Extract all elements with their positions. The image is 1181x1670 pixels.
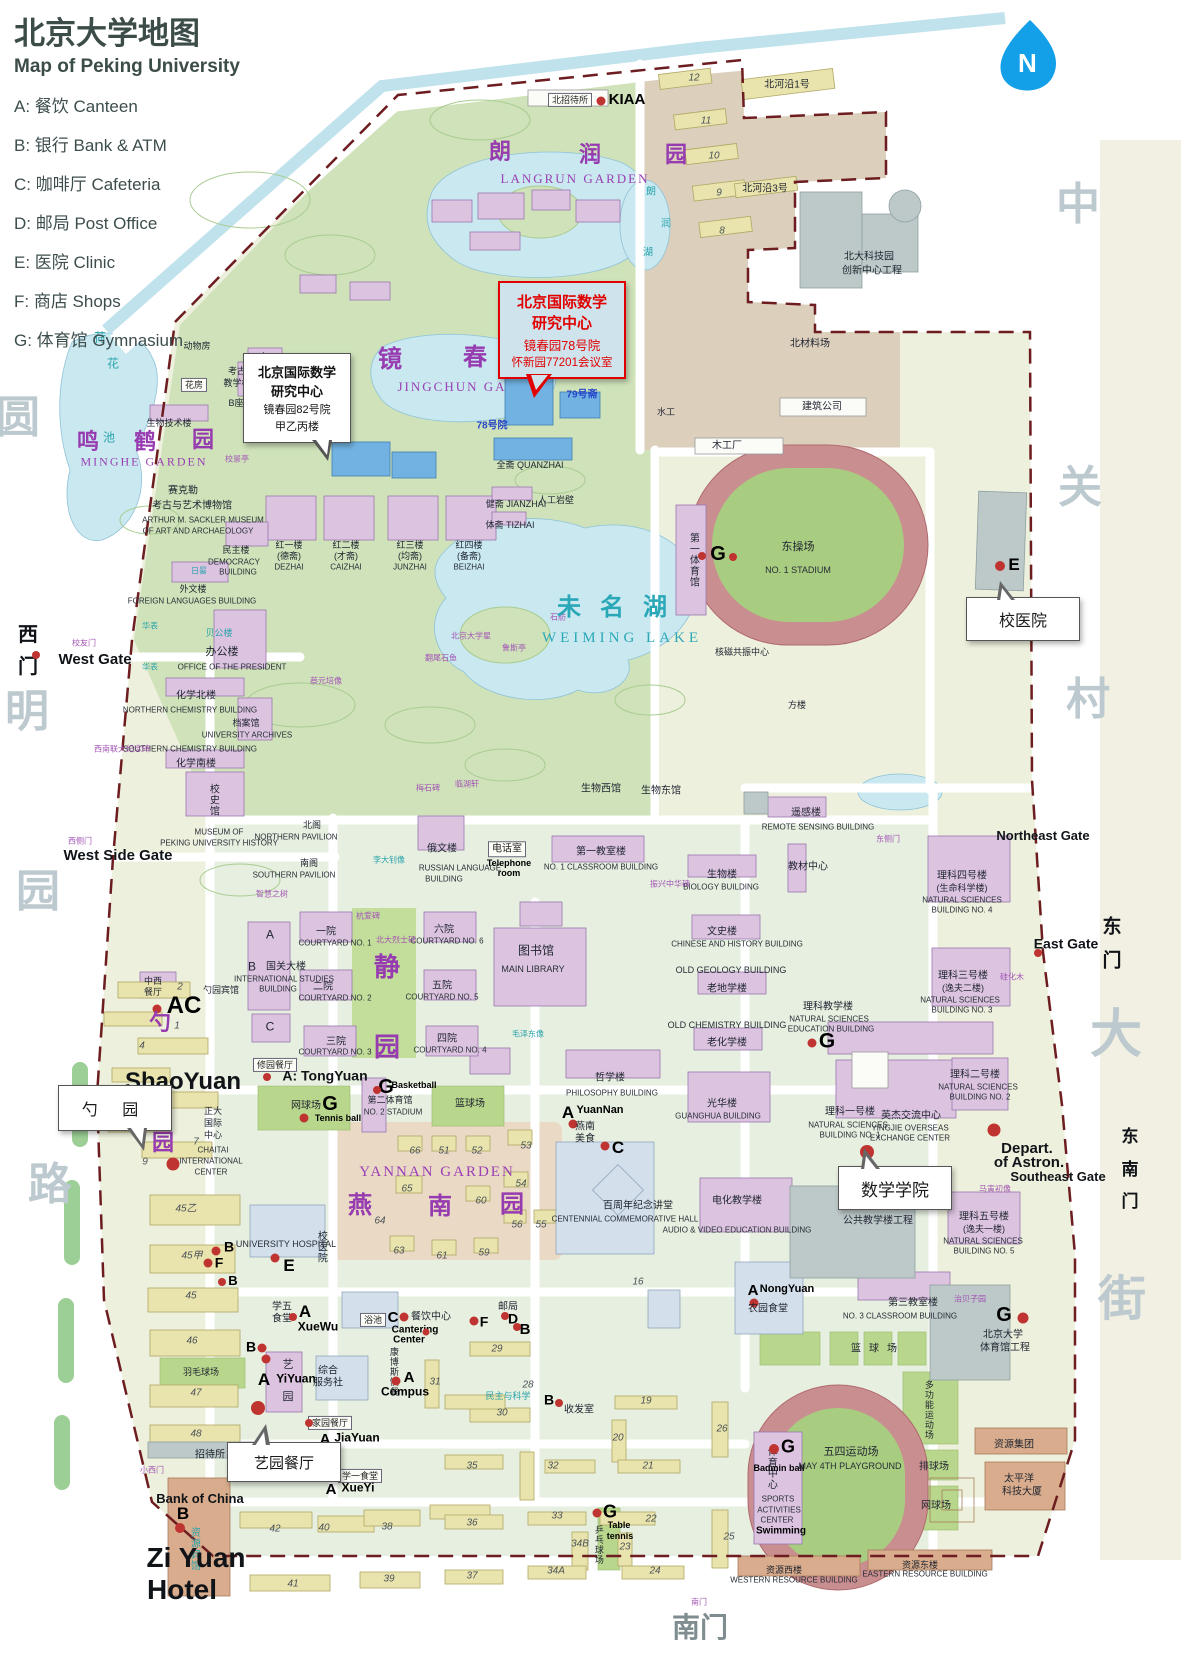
callout-shaoyuan: 勺 园: [58, 1085, 172, 1131]
marker-dot: [204, 1259, 213, 1268]
map-label: OF ART AND ARCHAEOLOGY: [143, 528, 254, 537]
map-label: 园: [16, 868, 60, 916]
marker-dot: [601, 1142, 610, 1151]
map-label: 北大烈士碑: [376, 937, 416, 946]
gate-label: 西: [18, 625, 38, 647]
map-label: 北河沿3号: [742, 185, 788, 196]
map-label: (均斋): [398, 552, 422, 562]
poi-marker: E: [283, 1257, 294, 1275]
map-label: (逸夫二楼): [942, 984, 984, 994]
map-label: 61: [436, 1252, 447, 1263]
map-label: 水工: [657, 408, 675, 418]
marker-dot: [271, 1254, 280, 1263]
map-label: 文史楼: [707, 928, 737, 939]
map-label: 润: [661, 220, 671, 231]
map-label: 国关大楼: [266, 963, 306, 974]
map-label: 大: [1090, 1007, 1142, 1063]
callout-line: 研究中心: [532, 312, 592, 333]
map-label: 24: [649, 1567, 660, 1578]
map-label: 木工厂: [712, 442, 742, 453]
poi-marker: Compus: [381, 1386, 429, 1399]
map-label: BIOLOGY BUILDING: [683, 884, 759, 893]
map-label: 学五: [272, 1303, 292, 1314]
map-label: 30: [496, 1409, 507, 1420]
map-label: INTERNATIONAL: [179, 1158, 242, 1167]
map-label: 64: [374, 1217, 385, 1228]
map-label: 生物楼: [707, 871, 737, 882]
marker-dot: [597, 97, 606, 106]
map-label: MUSEUM OF: [195, 829, 244, 838]
map-label: 餐厅: [144, 988, 162, 998]
map-label: 36: [466, 1519, 477, 1530]
map-label: 45乙: [175, 1205, 196, 1216]
map-label: 乒乓球场: [593, 1525, 603, 1565]
map-label: 网球场: [921, 1502, 951, 1513]
map-label: 北京大学星: [451, 633, 491, 642]
map-label: 北招待所: [548, 93, 592, 107]
map-label: WESTERN RESOURCE BUILDING: [730, 1577, 858, 1586]
marker-dot: [305, 1419, 313, 1427]
map-label: CHAITAI: [198, 1147, 229, 1156]
map-label: 红二楼: [332, 541, 359, 551]
map-label: LANGRUN GARDEN: [501, 172, 650, 186]
map-label: COURTYARD NO. 1: [298, 940, 371, 949]
map-label: 建筑公司: [802, 403, 842, 414]
map-label: 鸣: [77, 430, 99, 454]
map-label: 名: [600, 595, 626, 621]
marker-dot: [400, 1313, 409, 1322]
map-label: MAIN LIBRARY: [501, 965, 564, 975]
map-label: B: [248, 961, 256, 974]
poi-marker: G: [781, 1437, 795, 1456]
poi-marker: YuanNan: [576, 1105, 623, 1117]
map-label: 明: [5, 688, 49, 736]
callout-bicmr-78: 北京国际数学研究中心镜春园78号院怀新园77201会议室: [498, 281, 626, 379]
map-label: 东侧门: [876, 836, 900, 845]
map-label: 勺: [149, 1011, 171, 1035]
map-label: 艺: [283, 1360, 294, 1372]
map-label: NORTHERN CHEMISTRY BUILDING: [123, 707, 257, 716]
map-label: 西侧门: [68, 838, 92, 847]
marker-dot: [32, 651, 40, 659]
map-label: 未: [557, 595, 583, 621]
map-label: DEMOCRACY: [208, 559, 260, 568]
map-label: JINGCHUN GA: [397, 380, 506, 394]
map-label: 西南联大纪念碑: [94, 746, 150, 755]
map-label: 第一体育馆: [687, 533, 698, 588]
map-label: BEIZHAI: [453, 564, 484, 573]
map-label: 国际: [204, 1119, 222, 1129]
map-label: 校景亭: [225, 456, 249, 465]
poi-marker: G: [603, 1502, 617, 1521]
map-label: 1: [174, 1022, 180, 1033]
callout-line: 镜春园82号院: [263, 401, 330, 417]
map-label: 方楼: [788, 701, 806, 711]
map-label: 理科二号楼: [950, 1071, 1000, 1082]
marker-dot: [501, 1312, 509, 1320]
map-label: OLD GEOLOGY BUILDING: [676, 966, 787, 976]
gate-label: 门: [1102, 952, 1121, 973]
map-label: 41: [287, 1580, 298, 1591]
map-label: BUILDING NO. 2: [950, 1094, 1011, 1103]
map-label: 园: [500, 1192, 524, 1218]
map-label: 圆: [0, 394, 40, 442]
marker-dot: [423, 1329, 430, 1336]
map-label: 马寅初像: [979, 1186, 1011, 1195]
poi-marker: F: [215, 1255, 224, 1270]
map-label: 23: [619, 1543, 630, 1554]
map-label: 鲁斯亭: [502, 645, 526, 654]
map-label: 16: [632, 1278, 643, 1289]
map-label: 服务社: [313, 1379, 343, 1390]
map-label: 杭爱碑: [356, 913, 380, 922]
map-label: 北京大学: [983, 1331, 1023, 1342]
map-label: NORTHERN PAVILION: [254, 834, 337, 843]
map-label: 关: [1058, 464, 1102, 512]
callout-pointer-inner: [531, 375, 548, 390]
map-label: 一院: [316, 928, 336, 939]
poi-marker: C: [612, 1139, 624, 1157]
poi-marker: Badmin ball: [753, 1464, 804, 1474]
map-label: 资源集团: [994, 1441, 1034, 1452]
marker-dot: [513, 1323, 521, 1331]
map-label: 家园餐厅: [308, 1416, 352, 1430]
poi-marker: B: [520, 1322, 531, 1338]
map-label: 餐饮中心: [411, 1313, 451, 1324]
map-label: 电化教学楼: [712, 1197, 762, 1208]
gate-label: 东: [1122, 1128, 1139, 1146]
marker-dot: [729, 553, 737, 561]
map-label: (备斋): [457, 552, 481, 562]
map-label: 南门: [672, 1613, 728, 1643]
callout-yiyuan-text: 艺园餐厅: [254, 1452, 314, 1473]
poi-marker: KIAA: [609, 92, 646, 108]
map-label: 中西: [144, 977, 162, 987]
map-label: 毛泽东像: [512, 1031, 544, 1040]
map-label: 北河沿1号: [764, 81, 810, 92]
legend-item: A: 餐饮 Canteen: [14, 92, 240, 117]
map-label: 资源西楼: [766, 1566, 802, 1576]
map-label: 红四楼: [455, 541, 482, 551]
marker-dot: [300, 1114, 309, 1123]
map-label: EXCHANGE CENTER: [870, 1135, 950, 1144]
map-label: 李大钊像: [373, 857, 405, 866]
legend-item: B: 银行 Bank & ATM: [14, 131, 240, 156]
map-label: 中: [1056, 181, 1100, 229]
map-label: 农园食堂: [748, 1305, 788, 1316]
map-label: 34A: [547, 1567, 565, 1578]
map-label: 五四运动场: [824, 1447, 879, 1459]
marker-dot: [769, 1444, 779, 1454]
gate-label: 门: [18, 657, 38, 679]
marker-dot: [698, 552, 706, 560]
poi-marker: XueWu: [298, 1321, 338, 1334]
map-label: 37: [466, 1572, 477, 1583]
map-label: (生命科学楼): [937, 884, 988, 894]
map-label: 北阁: [303, 821, 321, 831]
map-label: 南: [428, 1194, 452, 1220]
map-label: 40: [318, 1524, 329, 1535]
legend-items: A: 餐饮 CanteenB: 银行 Bank & ATMC: 咖啡厅 Cafe…: [14, 92, 240, 351]
map-label: 篮球场: [851, 1345, 905, 1356]
map-label: 65: [401, 1185, 412, 1196]
marker-dot: [218, 1278, 226, 1286]
map-label: 二院: [313, 983, 333, 994]
map-label: 38: [381, 1523, 392, 1534]
map-label: 贝公楼: [205, 629, 232, 639]
map-label: 收发室: [564, 1406, 594, 1417]
map-label: UNIVERSITY ARCHIVES: [202, 732, 293, 741]
map-label: 羽毛球场: [183, 1368, 219, 1378]
map-label: 第三教室楼: [888, 1299, 938, 1310]
map-label: 公共教学楼工程: [843, 1217, 913, 1228]
map-label: 华表: [142, 664, 158, 673]
map-label: 园: [152, 1131, 174, 1155]
legend-item: G: 体育馆 Gymnasium: [14, 326, 240, 351]
map-label: NO. 1 STADIUM: [765, 566, 831, 576]
poi-marker: room: [498, 869, 521, 879]
poi-marker: tennis: [607, 1532, 634, 1542]
map-label: 池: [103, 432, 115, 445]
map-label: 多功能运动场: [923, 1380, 933, 1440]
map-label: EASTERN RESOURCE BUILDING: [862, 1571, 987, 1580]
map-subtitle: Map of Peking University: [14, 56, 240, 78]
callout-pointer-inner: [1000, 588, 1012, 601]
map-label: 理科教学楼: [803, 1003, 853, 1014]
map-label: 俄文楼: [427, 845, 457, 856]
poi-marker: B: [224, 1239, 234, 1254]
marker-dot: [167, 1158, 180, 1171]
map-label: 42: [269, 1525, 280, 1536]
map-label: (逸夫一楼): [963, 1225, 1005, 1235]
map-label: 南阁: [300, 859, 318, 869]
map-label: 园: [192, 428, 214, 452]
map-label: (德斋): [277, 552, 301, 562]
map-label: 档案馆: [232, 719, 259, 729]
map-label: A: [266, 929, 274, 942]
map-label: 民主楼: [222, 546, 249, 556]
legend: 北京大学地图 Map of Peking University A: 餐饮 Ca…: [14, 8, 240, 351]
map-label: 4: [139, 1042, 145, 1053]
poi-marker: B: [228, 1274, 237, 1288]
map-label: 六院: [434, 926, 454, 937]
map-label: 54: [515, 1180, 526, 1191]
poi-marker: Swimming: [756, 1527, 806, 1538]
map-label: 12: [688, 74, 699, 85]
map-label: 美食: [575, 1135, 595, 1146]
map-label: 智慧之树: [256, 891, 288, 900]
map-label: 48: [190, 1430, 201, 1441]
map-label: 19: [640, 1397, 651, 1408]
map-label: 外文楼: [179, 585, 206, 595]
map-label: NO. 3 CLASSROOM BUILDING: [843, 1313, 957, 1322]
map-label: 39: [383, 1575, 394, 1586]
map-label: 25: [723, 1533, 734, 1544]
callout-math-school: 数学学院: [838, 1166, 952, 1210]
map-label: 光华楼: [707, 1100, 737, 1111]
map-label: 春: [463, 345, 487, 371]
map-label: 22: [645, 1515, 656, 1526]
gate-label: Zi Yuan: [146, 1543, 245, 1573]
map-label: 街: [1098, 1274, 1146, 1326]
callout-shaoyuan-text: 勺 园: [82, 1096, 148, 1120]
map-label: SOUTHERN PAVILION: [253, 872, 336, 881]
map-label: 湖: [643, 249, 653, 260]
map-label: 28: [522, 1381, 533, 1392]
poi-marker: B: [246, 1339, 256, 1354]
marker-dot: [593, 1509, 602, 1518]
gate-label: A: TongYuan: [282, 1068, 367, 1083]
map-label: 体育馆工程: [980, 1344, 1030, 1355]
poi-marker: AC: [167, 993, 202, 1019]
map-label: 南门: [691, 1599, 707, 1608]
map-label: SPORTS: [762, 1496, 795, 1505]
map-label: 五院: [432, 982, 452, 993]
callout-bicmr-82: 北京国际数学研究中心镜春园82号院甲乙丙楼: [243, 353, 351, 443]
marker-dot: [258, 1344, 267, 1353]
map-label: BUILDING NO. 4: [932, 907, 993, 916]
map-label: FOREIGN LANGUAGES BUILDING: [128, 598, 256, 607]
map-label: 化学北楼: [176, 692, 216, 703]
map-label: 润: [579, 143, 601, 167]
marker-dot: [175, 1523, 185, 1533]
map-label: 花房: [181, 378, 207, 392]
poi-marker: F: [480, 1314, 489, 1329]
map-label: 理科一号楼: [825, 1108, 875, 1119]
marker-dot: [1034, 949, 1042, 957]
poi-marker: Tennis ball: [315, 1114, 361, 1124]
map-label: 33: [551, 1512, 562, 1523]
map-label: 民主与科学: [485, 1392, 530, 1402]
map-label: 路: [28, 1161, 72, 1209]
map-label: 9: [716, 189, 722, 200]
map-label: 燕: [348, 1193, 372, 1219]
map-label: CENTER: [761, 1517, 794, 1526]
map-label: 59: [478, 1249, 489, 1260]
map-label: CENTENNIAL COMMEMORATIVE HALL: [552, 1216, 699, 1225]
map-label: 村: [1066, 676, 1110, 724]
map-label: 红三楼: [396, 541, 423, 551]
map-label: REMOTE SENSING BUILDING: [762, 824, 874, 833]
map-label: 北材料场: [790, 340, 830, 351]
map-label: 老地学楼: [707, 985, 747, 996]
map-label: 78号院: [476, 422, 507, 433]
map-label: 34B: [571, 1540, 589, 1551]
map-label: 45甲: [181, 1252, 202, 1263]
callout-line: 研究中心: [271, 381, 323, 400]
map-label: CHINESE AND HISTORY BUILDING: [671, 941, 803, 950]
map-label: 招待所: [195, 1451, 225, 1462]
map-label: 办公楼: [206, 647, 239, 659]
map-label: 朗: [646, 188, 656, 199]
map-label: 临湖轩: [455, 781, 479, 790]
marker-dot: [263, 1073, 271, 1081]
legend-item: F: 商店 Shops: [14, 287, 240, 312]
map-label: 日晷: [191, 568, 207, 577]
callout-line: 怀新园77201会议室: [512, 354, 613, 370]
map-label: CENTER: [195, 1169, 228, 1178]
map-label: 79号斋: [566, 391, 597, 402]
gate-label: Hotel: [147, 1575, 217, 1605]
gate-label: 东: [1102, 918, 1121, 939]
map-label: 29: [491, 1345, 502, 1356]
map-label: 园: [374, 1033, 400, 1061]
map-label: 理科五号楼: [959, 1213, 1009, 1224]
map-label: 45: [185, 1292, 196, 1303]
poi-marker: G: [819, 1031, 835, 1054]
map-label: 网球场: [291, 1102, 321, 1113]
map-label: AUDIO & VIDEO EDUCATION BUILDING: [663, 1227, 812, 1236]
map-label: 硅化木: [1000, 974, 1024, 983]
map-label: 53: [520, 1142, 531, 1153]
map-label: BUILDING: [425, 876, 463, 885]
map-label: MINGHE GARDEN: [81, 456, 208, 469]
map-title: 北京大学地图: [14, 8, 240, 53]
poi-marker: JiaYuan: [334, 1432, 379, 1445]
map-label: 10: [708, 152, 719, 163]
map-label: 2: [177, 983, 183, 994]
map-label: NATURAL SCIENCES: [922, 897, 1002, 906]
map-label: 9: [142, 1158, 148, 1169]
map-label: 园: [283, 1392, 294, 1404]
map-label: 燕南: [575, 1123, 595, 1134]
map-label: COURTYARD NO. 5: [405, 994, 478, 1003]
map-label: BUILDING NO. 3: [932, 1007, 993, 1016]
map-label: 治贝子园: [954, 1296, 986, 1305]
marker-dot: [988, 1124, 1001, 1137]
gate-label: 南: [1122, 1161, 1139, 1179]
callout-pointer-inner: [131, 1128, 144, 1144]
map-label: 56: [511, 1221, 522, 1232]
map-label: 镜: [378, 347, 402, 373]
poi-marker: G: [996, 1305, 1012, 1327]
campus-map: 北招待所KIAA12111098北河沿1号北河沿3号朗润园LANGRUN GAR…: [0, 0, 1181, 1670]
map-label: 老化学楼: [707, 1039, 747, 1050]
map-label: 园: [665, 143, 687, 167]
map-label: YANNAN GARDEN: [359, 1164, 515, 1180]
map-label: 综合: [318, 1367, 338, 1378]
map-label: 化学南楼: [176, 760, 216, 771]
map-label: 生物西馆: [581, 785, 621, 796]
map-label: 勺园宾馆: [203, 986, 239, 996]
callout-pointer-inner: [316, 440, 329, 455]
callout-hospital: 校医院: [966, 597, 1080, 641]
map-label: 图书馆: [518, 945, 554, 958]
callout-line: 北京国际数学: [517, 291, 607, 312]
marker-dot: [470, 1317, 479, 1326]
poi-marker: A: [299, 1303, 311, 1321]
map-label: 66: [409, 1147, 420, 1158]
map-label: 校史馆: [207, 784, 218, 817]
map-label: COURTYARD NO. 6: [410, 938, 483, 947]
marker-dot: [289, 1313, 297, 1321]
gate-label: Bank of China: [156, 1492, 243, 1506]
map-label: 中心: [204, 1131, 222, 1141]
map-label: 校友门: [72, 640, 96, 649]
map-label: 翻尾石鱼: [425, 655, 457, 664]
map-label: ACTIVITIES: [757, 1507, 801, 1516]
map-label: 排球场: [919, 1463, 949, 1474]
map-label: 60: [475, 1197, 486, 1208]
map-label: 26: [716, 1425, 727, 1436]
map-label: 小西门: [140, 1467, 164, 1476]
callout-pointer-inner: [255, 1432, 266, 1446]
callout-line: 甲乙丙楼: [275, 418, 319, 434]
map-label: 健斋 JIANZHAI: [486, 500, 547, 510]
poi-marker: A: [258, 1371, 270, 1389]
poi-marker: B: [177, 1505, 189, 1523]
map-label: 四院: [437, 1035, 457, 1046]
